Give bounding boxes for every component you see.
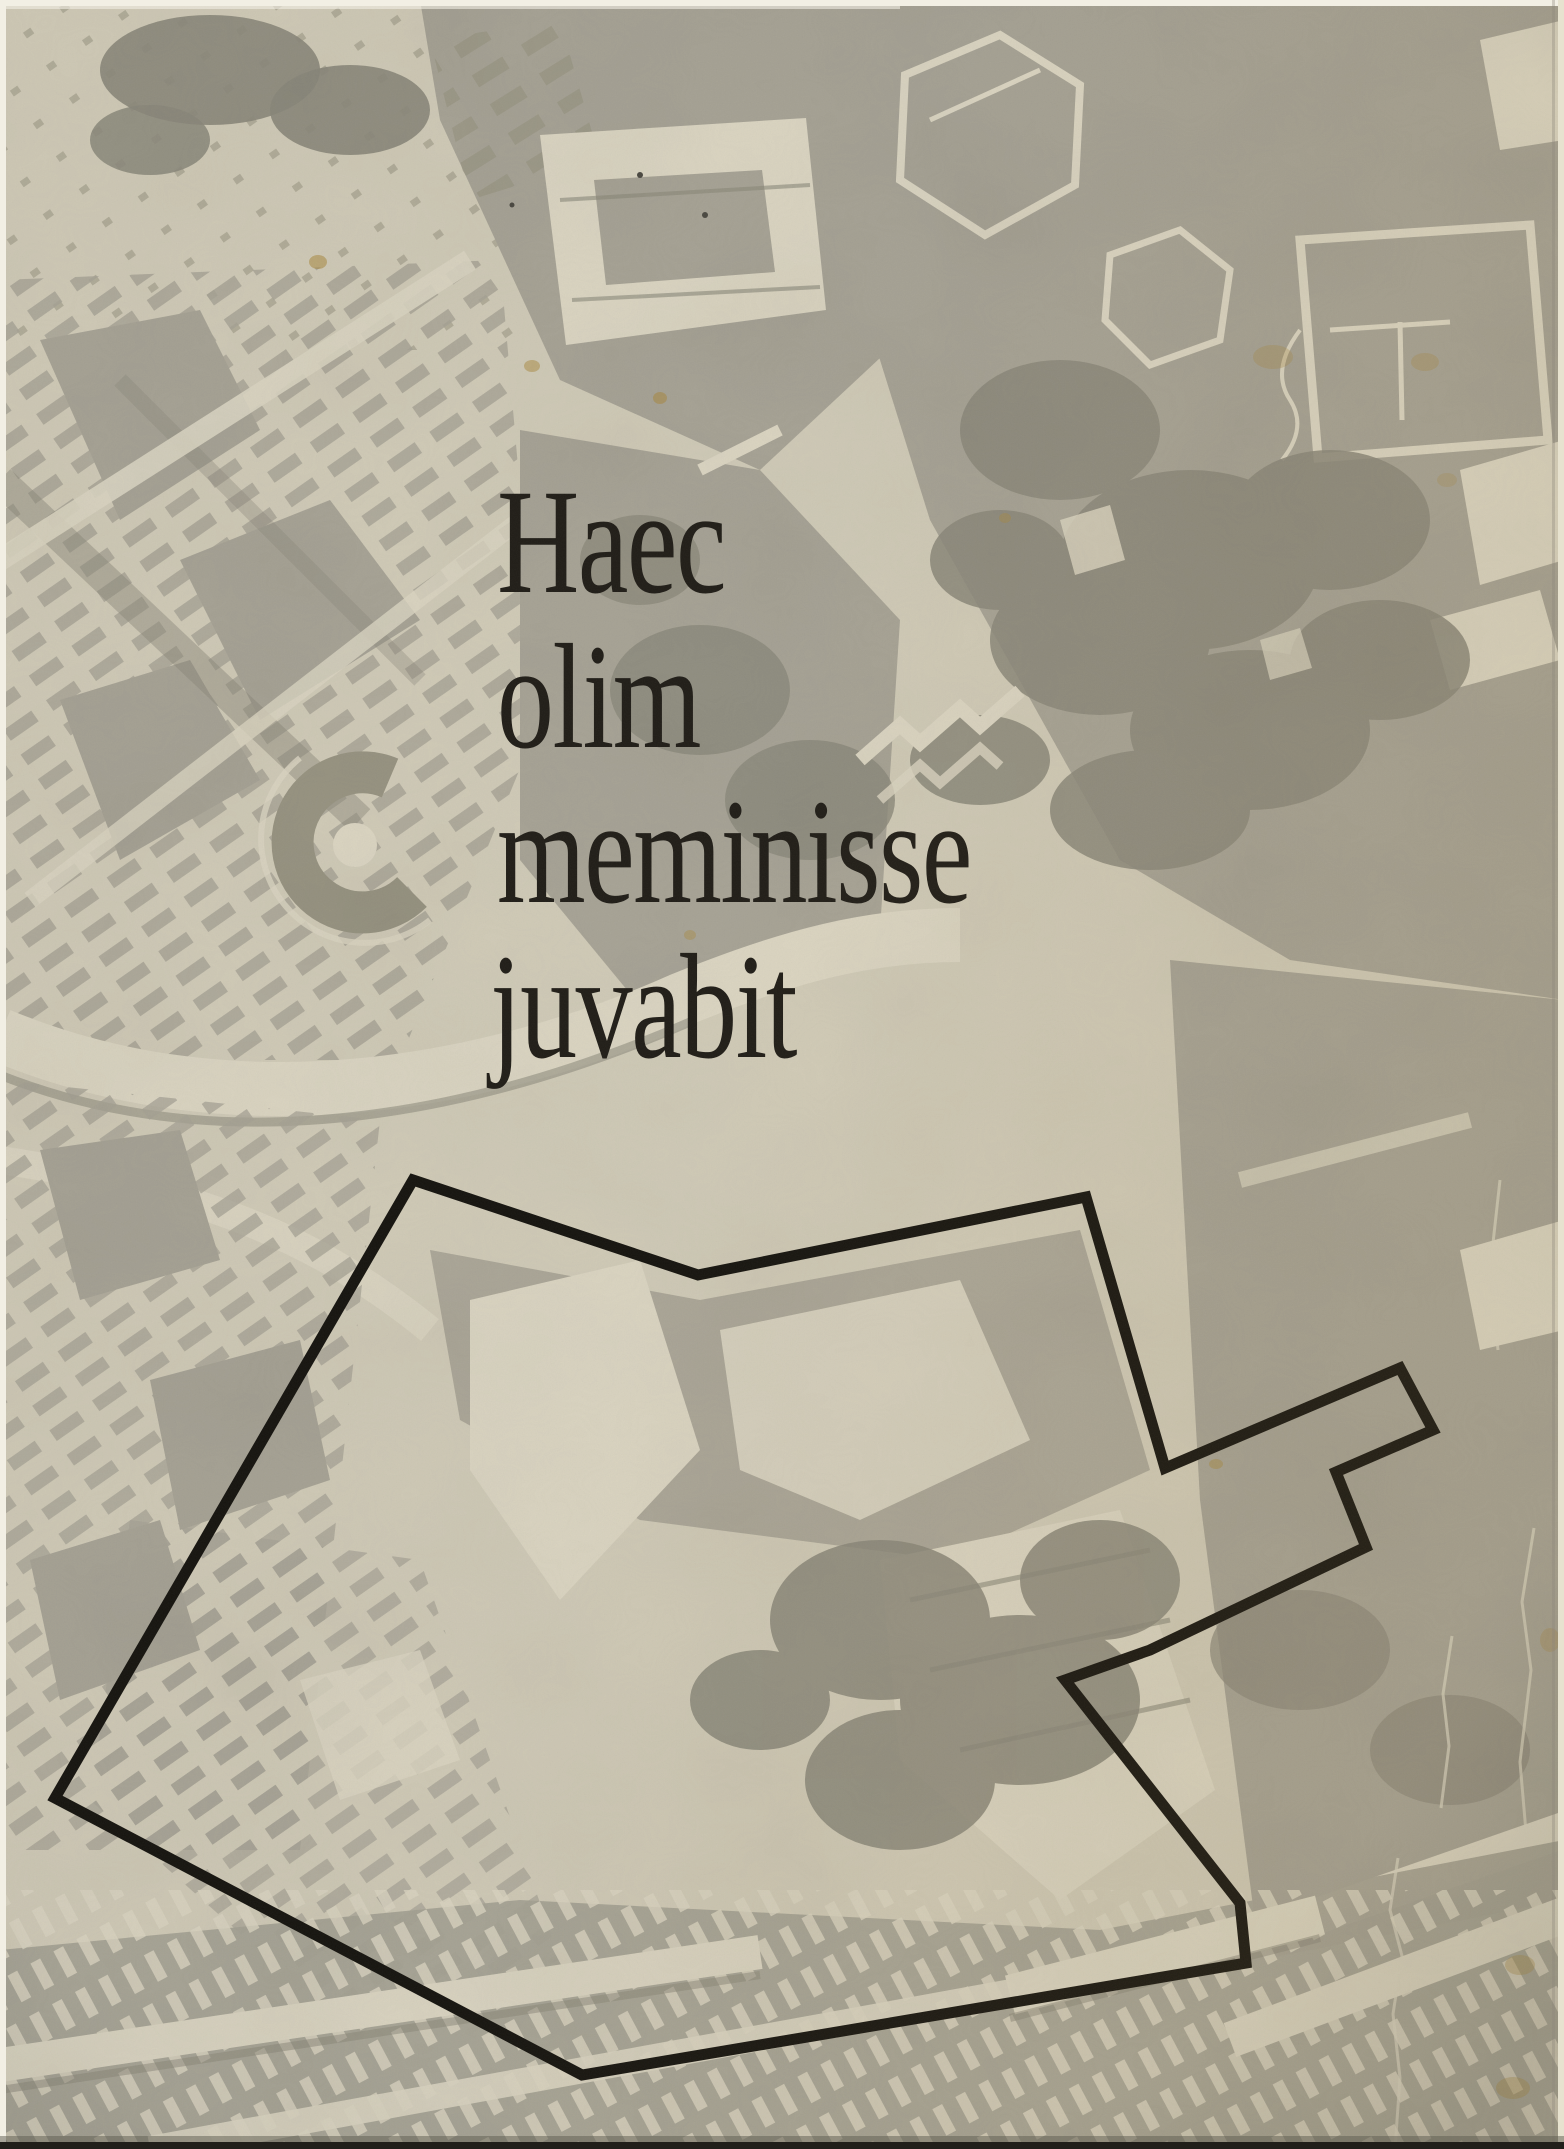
aerial-photo: Haec olim meminisse juvabit — [0, 0, 1564, 2149]
book-cover: Haec olim meminisse juvabit — [0, 0, 1564, 2149]
film-grain-light — [0, 0, 1564, 2149]
